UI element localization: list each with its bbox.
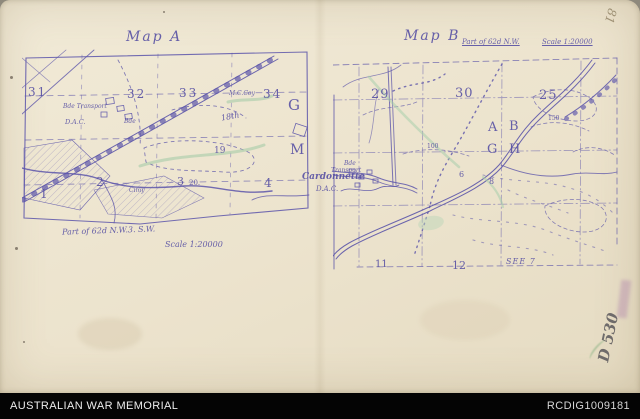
paper-stain — [420, 300, 510, 340]
map-b-place-cardonnette: Cardonnette — [302, 173, 365, 182]
map-b-square-letter-h: H — [509, 143, 520, 156]
archive-org-label: AUSTRALIAN WAR MEMORIAL — [10, 400, 178, 412]
map-b-note-8: 8 — [489, 178, 494, 186]
map-a-square-letter-g: G — [288, 98, 300, 113]
map-a-grid-number-33: 33 — [179, 87, 198, 99]
map-b-title: Map B — [404, 29, 460, 43]
paper-speck — [23, 341, 25, 343]
archive-id-label: RCDIG1009181 — [547, 400, 630, 412]
map-b-contour-150: 150 — [548, 116, 559, 122]
map-b-note-see7: SEE 7 — [506, 258, 536, 266]
map-a-grid-number-31: 31 — [28, 86, 47, 98]
map-b-grid-number-30: 30 — [455, 87, 474, 100]
map-b-square-letter-a: A — [488, 121, 497, 134]
paper-fold-crease — [314, 0, 326, 393]
map-a-caption-sheet: Part of 62d N.W.3. S.W. — [62, 225, 155, 236]
map-a-grid-number-1: 1 — [40, 188, 48, 200]
map-b-contour-100: 100 — [427, 144, 438, 150]
paper-speck — [10, 76, 13, 79]
paper-stain — [78, 318, 142, 350]
footer-bar: AUSTRALIAN WAR MEMORIAL RCDIG1009181 — [0, 393, 640, 419]
corner-pencil-note: 81 — [603, 7, 619, 25]
map-a-note-20: 20. — [189, 180, 200, 187]
map-a-note-mccoy: M.C.Coy — [229, 91, 255, 97]
map-b-header-scale: Scale 1:20000 — [542, 39, 593, 46]
scanned-document-photo: Map A 31 32 33 34 M.C.Coy 18th 19 G M 1 … — [0, 0, 640, 419]
map-b-grid-number-12: 12 — [452, 260, 466, 271]
map-a-note-cemetery: Cimy — [129, 188, 145, 194]
map-a-title: Map A — [126, 30, 182, 44]
map-a-note-19: 19 — [214, 147, 225, 156]
map-b-grid-number-29: 29 — [371, 88, 390, 101]
map-a-grid-number-2: 2 — [96, 176, 104, 188]
map-b-note-6: 6 — [459, 171, 464, 179]
map-a-drawing — [22, 48, 310, 233]
pencil-mark-d530: D 530 — [596, 312, 621, 364]
paper-sheet: Map A 31 32 33 34 M.C.Coy 18th 19 G M 1 … — [0, 0, 640, 393]
map-a-grid-number-34: 34 — [263, 88, 282, 100]
map-a-square-letter-m: M — [290, 143, 304, 157]
map-a-grid-number-3: 3 — [177, 176, 184, 187]
map-b-unit-dac: D.A.C. — [316, 186, 338, 193]
map-b-square-letter-b: B — [509, 120, 519, 133]
map-b-grid-number-11: 11 — [375, 260, 388, 270]
map-b-square-letter-g: G — [487, 143, 497, 156]
paper-speck — [163, 11, 165, 13]
map-b-grid-number-25: 25 — [539, 89, 558, 102]
map-a-grid-number-32: 32 — [127, 88, 146, 100]
purple-stamp — [617, 280, 632, 319]
paper-speck — [15, 247, 18, 250]
map-a-unit-bde-transport: Bde Transport — [63, 104, 107, 110]
map-b-header-sheet: Part of 62d N.W. — [462, 39, 520, 46]
map-a-grid-number-4: 4 — [264, 177, 272, 189]
map-a-note-bde: Bde — [124, 119, 136, 125]
map-a-unit-dac: D.A.C. — [65, 119, 86, 126]
map-a-caption-scale: Scale 1:20000 — [165, 241, 223, 249]
